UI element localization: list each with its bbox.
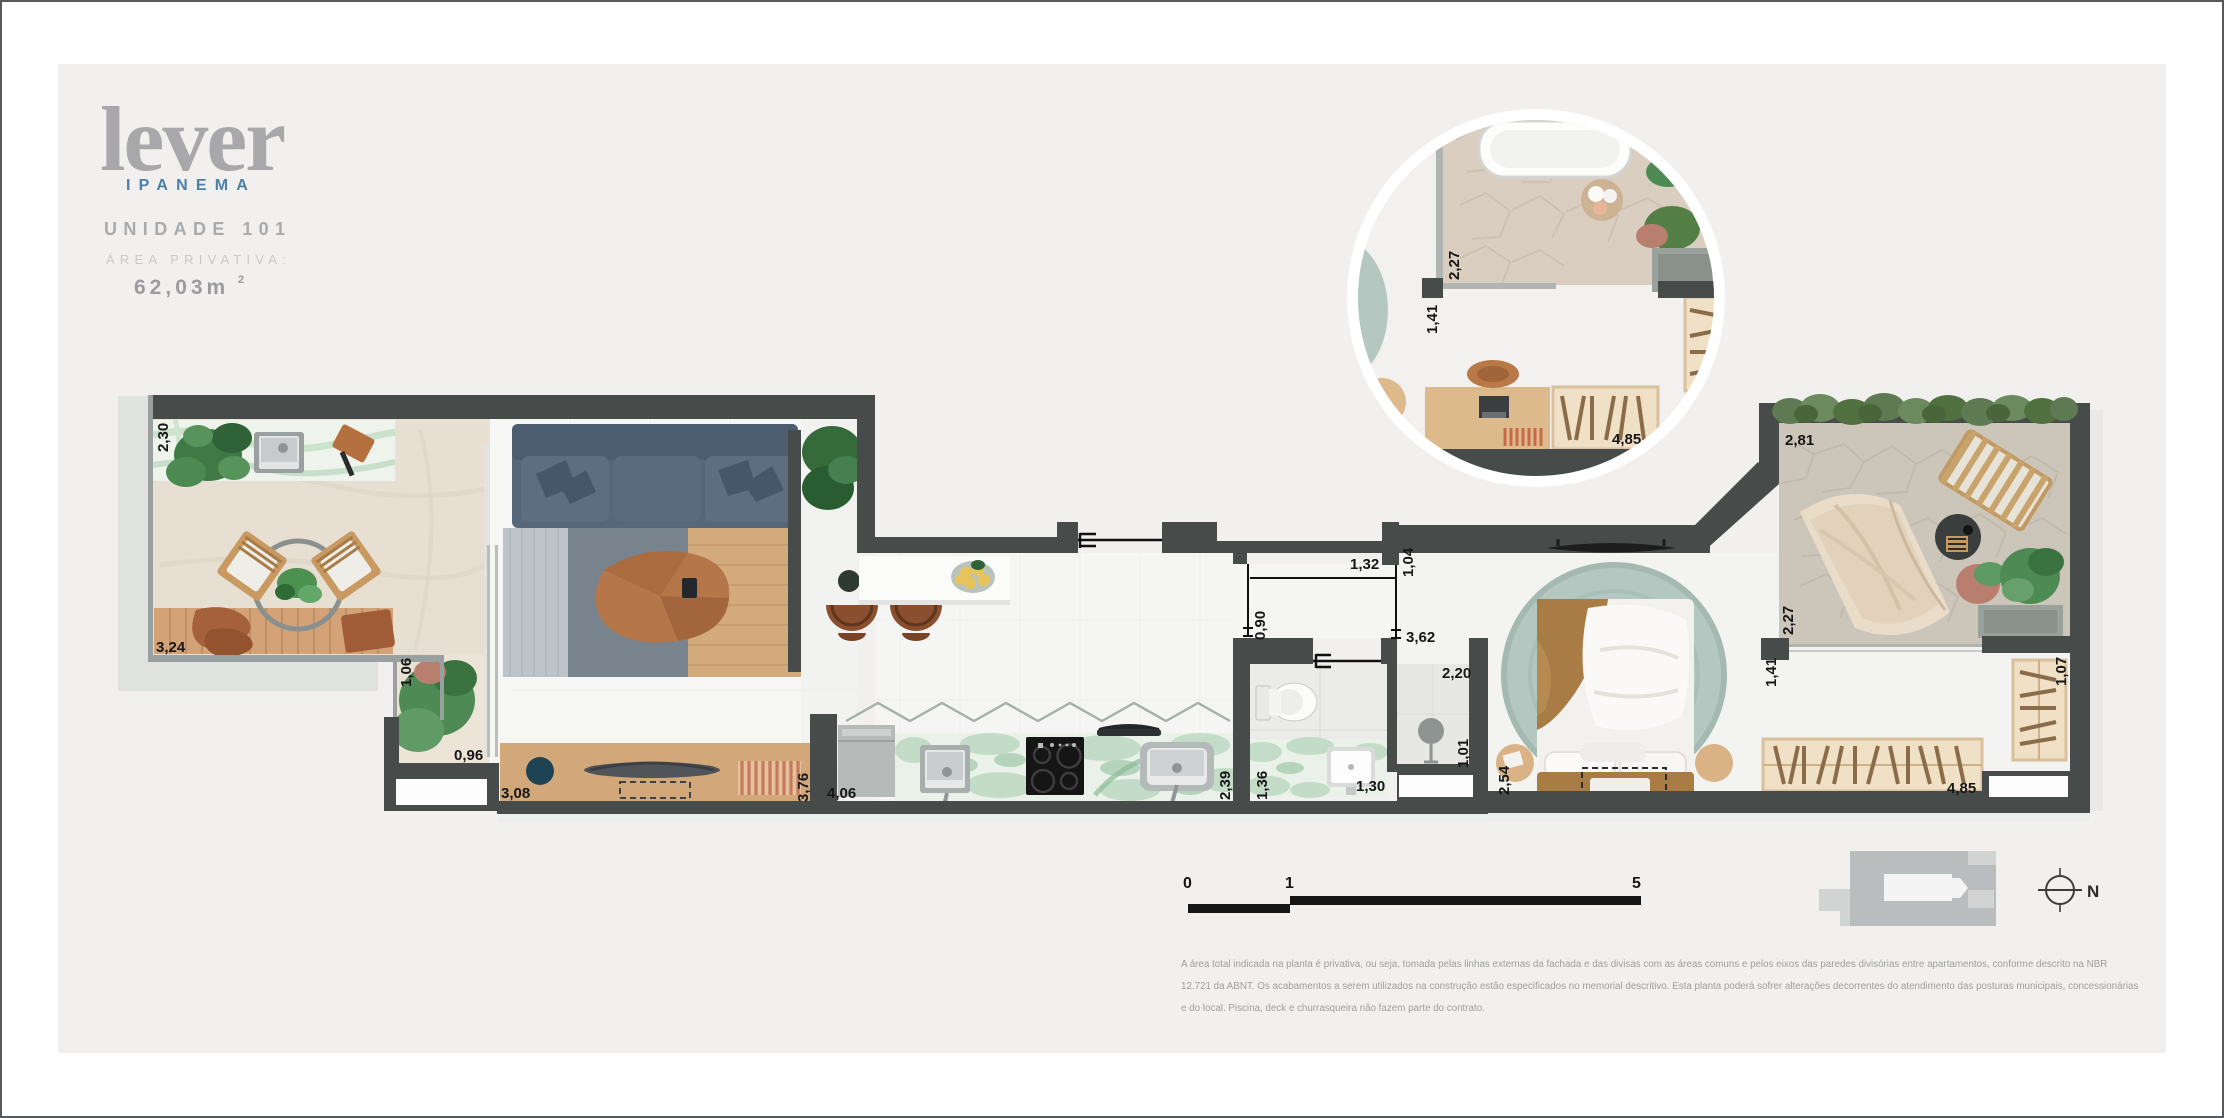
svg-text:12.721 da ABNT. Os acabamentos: 12.721 da ABNT. Os acabamentos a serem u… <box>1181 981 2138 992</box>
svg-text:e do local. Piscina, deck e ch: e do local. Piscina, deck e churrasqueir… <box>1181 1003 1485 1014</box>
svg-text:2,27: 2,27 <box>1780 606 1797 635</box>
svg-text:1,41: 1,41 <box>1763 658 1780 687</box>
svg-text:2,30: 2,30 <box>155 423 172 452</box>
svg-text:5: 5 <box>1632 875 1641 892</box>
svg-text:1,30: 1,30 <box>1356 778 1385 795</box>
svg-text:2,54: 2,54 <box>1496 765 1513 795</box>
svg-text:1,32: 1,32 <box>1350 556 1379 573</box>
svg-text:1,01: 1,01 <box>1455 739 1472 768</box>
svg-text:1: 1 <box>1285 875 1294 892</box>
svg-text:0,96: 0,96 <box>454 747 483 764</box>
svg-text:3,62: 3,62 <box>1406 629 1435 646</box>
svg-text:N: N <box>2087 882 2099 901</box>
svg-text:4,85: 4,85 <box>1947 780 1976 797</box>
svg-text:1,04: 1,04 <box>1400 547 1417 577</box>
svg-text:UNIDADE 101: UNIDADE 101 <box>104 219 291 239</box>
svg-text:2,27: 2,27 <box>1446 251 1463 280</box>
svg-text:0: 0 <box>1183 875 1192 892</box>
svg-text:0,90: 0,90 <box>1252 611 1269 640</box>
svg-text:1,41: 1,41 <box>1424 305 1441 334</box>
svg-text:2: 2 <box>238 274 244 286</box>
svg-text:ÁREA PRIVATIVA:: ÁREA PRIVATIVA: <box>106 252 291 267</box>
svg-text:2,81: 2,81 <box>1785 432 1814 449</box>
svg-text:4,06: 4,06 <box>827 785 856 802</box>
svg-text:lever: lever <box>100 88 284 190</box>
svg-text:2,20: 2,20 <box>1442 665 1471 682</box>
svg-text:3,76: 3,76 <box>795 773 812 802</box>
svg-text:1,06: 1,06 <box>398 658 415 687</box>
svg-text:2,39: 2,39 <box>1217 771 1234 800</box>
svg-text:3,08: 3,08 <box>501 785 530 802</box>
svg-text:A área total indicada na plant: A área total indicada na planta é privat… <box>1181 959 2107 970</box>
svg-text:62,03m: 62,03m <box>134 276 229 299</box>
svg-text:1,07: 1,07 <box>2053 657 2070 686</box>
svg-text:1,36: 1,36 <box>1254 771 1271 800</box>
svg-text:IPANEMA: IPANEMA <box>126 177 256 194</box>
svg-text:3,24: 3,24 <box>156 639 186 656</box>
